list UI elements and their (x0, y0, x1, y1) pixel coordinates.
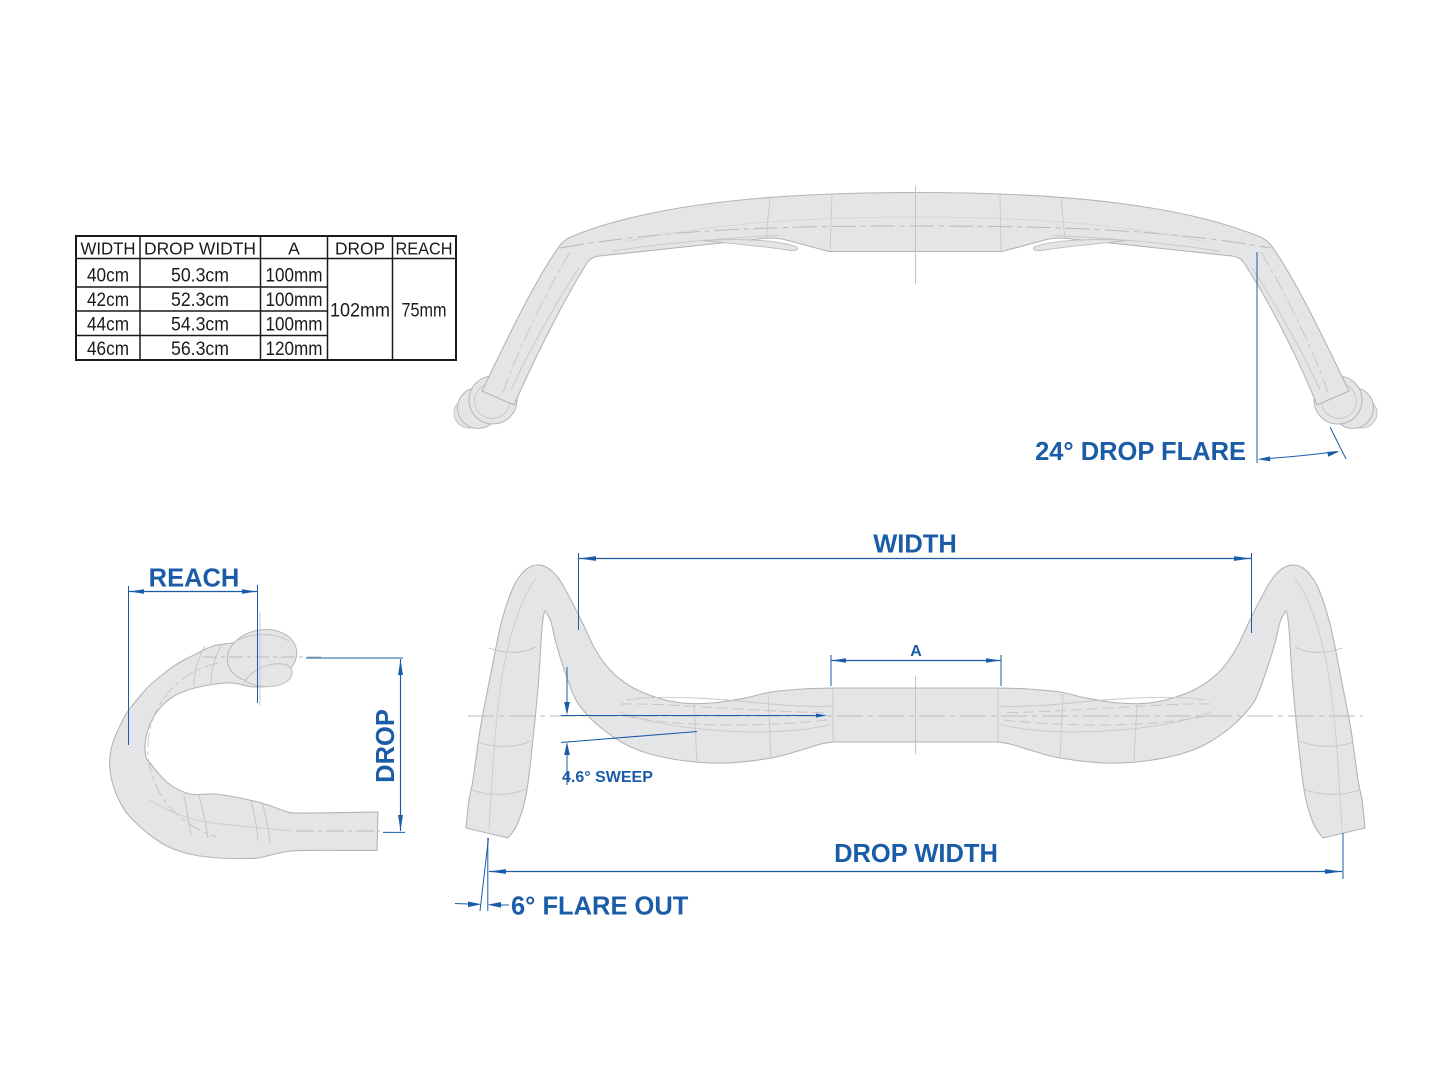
svg-text:REACH: REACH (149, 565, 240, 593)
svg-text:54.3cm: 54.3cm (171, 315, 229, 336)
svg-text:100mm: 100mm (266, 266, 323, 287)
svg-text:56.3cm: 56.3cm (171, 339, 229, 360)
svg-text:50.3cm: 50.3cm (171, 266, 229, 287)
svg-text:DROP: DROP (335, 239, 385, 259)
svg-text:6° FLARE OUT: 6° FLARE OUT (511, 893, 689, 921)
svg-text:DROP: DROP (372, 709, 400, 783)
svg-text:A: A (288, 239, 300, 259)
svg-text:DROP WIDTH: DROP WIDTH (834, 840, 998, 868)
svg-text:52.3cm: 52.3cm (171, 290, 229, 311)
svg-text:120mm: 120mm (266, 339, 323, 360)
svg-text:100mm: 100mm (266, 290, 323, 311)
svg-text:75mm: 75mm (402, 301, 447, 322)
svg-text:REACH: REACH (396, 239, 453, 259)
svg-text:DROP WIDTH: DROP WIDTH (144, 239, 256, 259)
svg-text:40cm: 40cm (87, 266, 129, 287)
svg-text:102mm: 102mm (330, 301, 390, 322)
svg-text:44cm: 44cm (87, 315, 129, 336)
svg-text:WIDTH: WIDTH (81, 239, 136, 259)
svg-text:A: A (910, 643, 922, 660)
svg-text:100mm: 100mm (266, 315, 323, 336)
svg-text:24° DROP FLARE: 24° DROP FLARE (1035, 438, 1246, 466)
svg-text:42cm: 42cm (87, 290, 129, 311)
svg-text:4.6° SWEEP: 4.6° SWEEP (562, 769, 653, 786)
svg-text:46cm: 46cm (87, 339, 129, 360)
svg-text:WIDTH: WIDTH (873, 531, 957, 559)
